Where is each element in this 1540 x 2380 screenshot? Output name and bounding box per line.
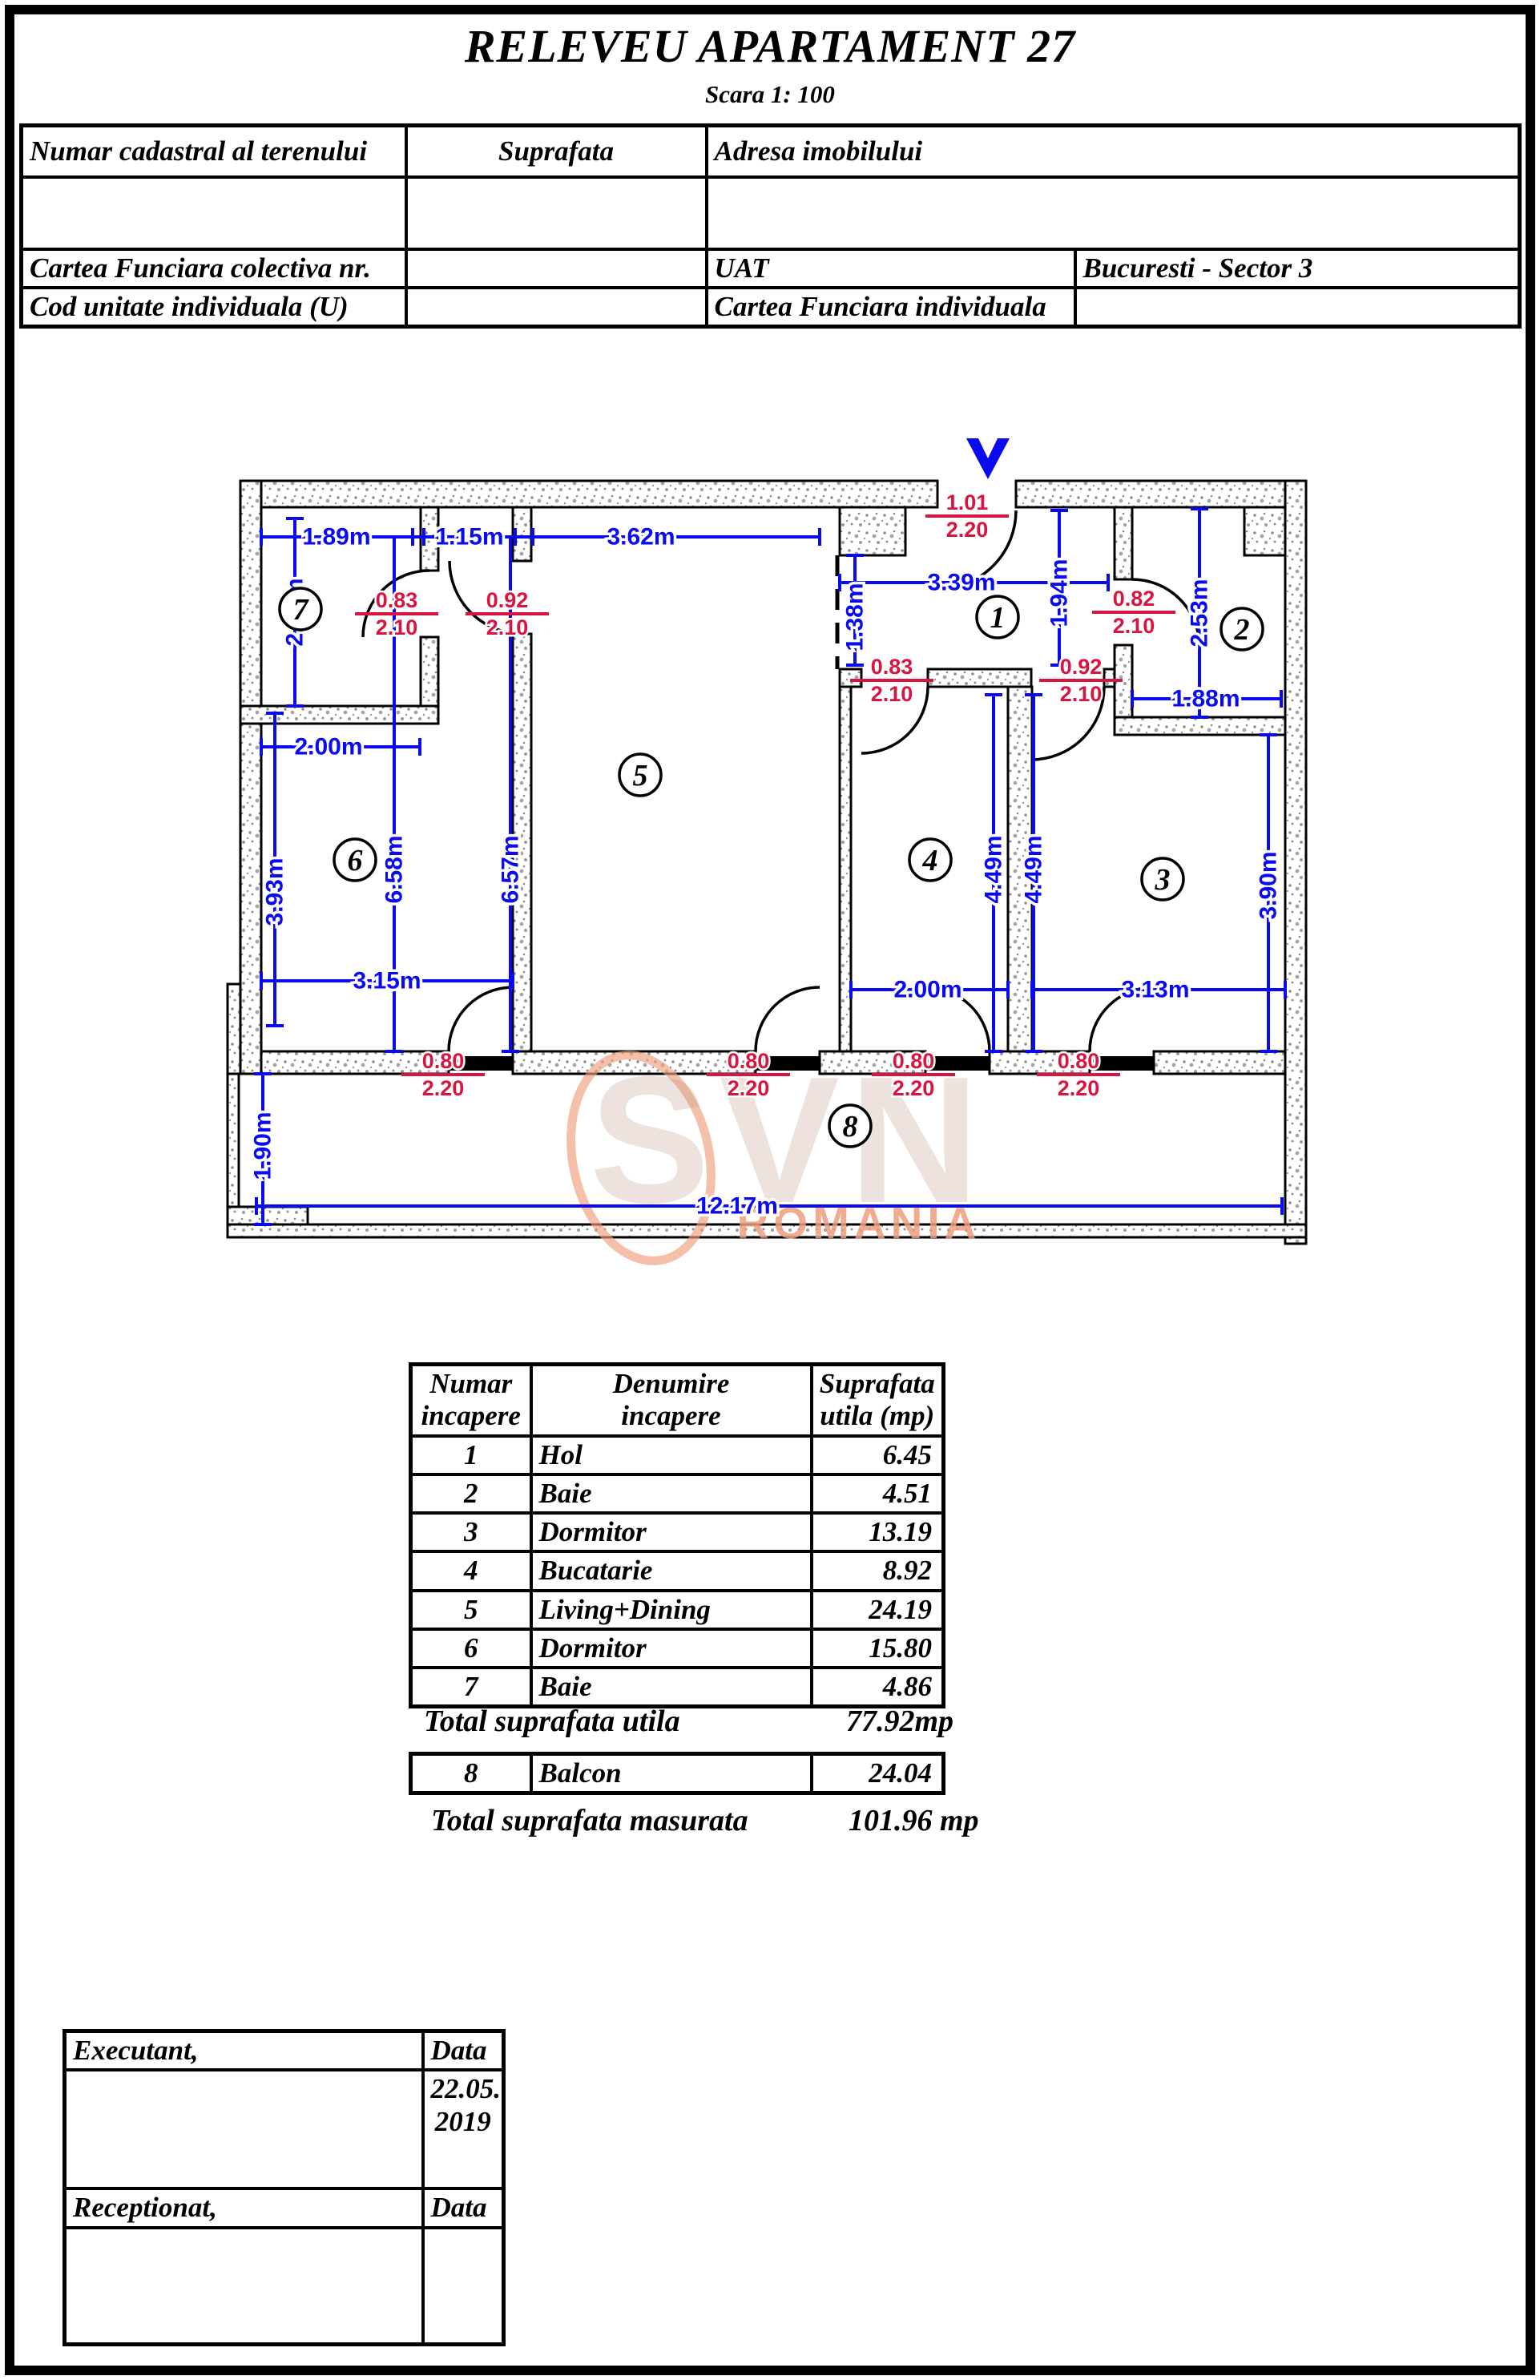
- col-header-suprafata: Suprafata utila (mp): [812, 1365, 944, 1436]
- dim-label: 6.58m: [381, 835, 408, 903]
- room-badge-1: 1: [977, 596, 1018, 638]
- dim-label: 6.57m: [498, 835, 524, 903]
- table-row: 3 Dormitor 13.19: [411, 1513, 944, 1551]
- cell-cf-colectiva: Cartea Funciara colectiva nr.: [22, 249, 406, 288]
- svg-text:8: 8: [843, 1110, 858, 1144]
- total-masurata-value: 101.96 mp: [849, 1803, 979, 1838]
- table-row: 1 Hol 6.45: [411, 1436, 944, 1474]
- cell-cf-individuala: Cartea Funciara individuala: [707, 288, 1075, 327]
- room-badge-2: 2: [1221, 608, 1263, 650]
- cell-empty: [406, 288, 707, 327]
- dim-label: 3.39m: [927, 570, 995, 596]
- door-size-label: 0.82 2.10: [1092, 587, 1175, 638]
- dim-label: 1.89m: [302, 524, 370, 551]
- room-badge-3: 3: [1142, 858, 1183, 900]
- svg-text:7: 7: [293, 593, 310, 627]
- svg-text:1.01: 1.01: [946, 490, 989, 514]
- table-row: 6 Dormitor 15.80: [411, 1629, 944, 1668]
- dim-label: 1.94m: [1046, 559, 1073, 627]
- svg-text:2.10: 2.10: [1113, 614, 1155, 638]
- svg-text:2.20: 2.20: [946, 518, 989, 542]
- table-row: 8 Balcon 24.04: [411, 1754, 944, 1793]
- room-areas-table: Numar incapere Denumire incapere Suprafa…: [409, 1362, 945, 1708]
- dim-label: 1.15m: [435, 524, 503, 551]
- room-badge-7: 7: [280, 588, 321, 630]
- svg-text:0.82: 0.82: [1113, 587, 1155, 611]
- cell-uat: UAT: [707, 249, 1075, 288]
- cell-empty: [423, 2228, 504, 2345]
- svg-text:2.10: 2.10: [376, 615, 418, 639]
- svg-text:4: 4: [922, 844, 938, 877]
- svg-text:0.83: 0.83: [376, 588, 418, 612]
- svg-text:0.92: 0.92: [486, 588, 529, 612]
- svg-text:0.80: 0.80: [422, 1049, 465, 1073]
- cell-empty: [406, 177, 707, 249]
- dim-label: 3.93m: [262, 857, 288, 926]
- cell-cod-unitate: Cod unitate individuala (U): [22, 288, 406, 327]
- floor-plan: SVN ROMANIA 1.89m 1.15m: [208, 433, 1330, 1266]
- dim-label: 1.88m: [1171, 686, 1240, 712]
- dim-label: 3.15m: [353, 968, 421, 994]
- document-page: RELEVEU APARTAMENT 27 Scara 1: 100 Numar…: [0, 0, 1540, 2380]
- scale-label: Scara 1: 100: [0, 80, 1540, 109]
- cell-empty: [22, 177, 406, 249]
- svg-text:5: 5: [633, 759, 648, 793]
- room-badge-4: 4: [909, 839, 951, 881]
- cell-date: 22.05. 2019: [423, 2070, 504, 2188]
- col-header-denumire: Denumire incapere: [531, 1365, 812, 1436]
- dim-label: 3.90m: [1256, 851, 1282, 919]
- svg-text:0.80: 0.80: [1058, 1049, 1100, 1073]
- dim-label: 2.00m: [294, 734, 362, 760]
- svg-text:3: 3: [1155, 863, 1171, 897]
- svg-text:0.83: 0.83: [871, 655, 913, 679]
- svg-text:2.10: 2.10: [486, 615, 529, 639]
- svg-text:6: 6: [348, 844, 363, 877]
- door-size-label: 0.83 2.10: [850, 655, 933, 706]
- balcony-row-table: 8 Balcon 24.04: [409, 1752, 945, 1795]
- total-utila-value: 77.92mp: [846, 1704, 953, 1739]
- svg-text:0.80: 0.80: [728, 1049, 770, 1073]
- dim-label: 3.13m: [1121, 977, 1189, 1003]
- signature-table: Executant, Data 22.05. 2019 Receptionat,…: [62, 2029, 506, 2346]
- svg-text:2.20: 2.20: [728, 1076, 770, 1100]
- svg-text:1: 1: [990, 601, 1006, 635]
- dim-label: 12.17m: [696, 1193, 778, 1220]
- total-utila-label: Total suprafata utila: [424, 1704, 680, 1739]
- cell-receptionat: Receptionat,: [65, 2188, 423, 2227]
- svg-text:2.20: 2.20: [1058, 1076, 1100, 1100]
- page-title: RELEVEU APARTAMENT 27: [0, 19, 1540, 73]
- total-masurata-label: Total suprafata masurata: [431, 1803, 748, 1838]
- table-row: 5 Living+Dining 24.19: [411, 1591, 944, 1629]
- door-size-label: 0.92 2.10: [466, 588, 549, 639]
- cell-empty: [707, 177, 1520, 249]
- room-badge-8: 8: [829, 1105, 871, 1147]
- table-row: 7 Baie 4.86: [411, 1668, 944, 1707]
- cell-data-1: Data: [423, 2031, 504, 2071]
- cadastral-header-table: Numar cadastral al terenului Suprafata A…: [19, 123, 1522, 329]
- dim-label: 4.49m: [981, 835, 1007, 903]
- cell-executant: Executant,: [65, 2031, 423, 2071]
- table-row: 4 Bucatarie 8.92: [411, 1551, 944, 1590]
- room-badge-5: 5: [619, 754, 661, 796]
- table-row: 2 Baie 4.51: [411, 1474, 944, 1513]
- dim-label: 2.53m: [1187, 579, 1213, 647]
- col-header-numar: Numar incapere: [411, 1365, 531, 1436]
- svg-text:2.10: 2.10: [871, 682, 913, 706]
- cell-sector: Bucuresti - Sector 3: [1075, 249, 1520, 288]
- cell-data-2: Data: [423, 2188, 504, 2227]
- cell-adresa: Adresa imobilului: [707, 126, 1520, 177]
- cell-empty: [65, 2070, 423, 2188]
- svg-text:2.10: 2.10: [1060, 682, 1103, 706]
- room-badge-6: 6: [334, 839, 376, 881]
- svg-text:2.20: 2.20: [422, 1076, 465, 1100]
- dim-label: 4.49m: [1021, 835, 1047, 903]
- entrance-arrow-icon: [966, 438, 1010, 479]
- svg-text:2: 2: [1234, 613, 1250, 647]
- svg-text:2.20: 2.20: [893, 1076, 935, 1100]
- cell-empty: [406, 249, 707, 288]
- cell-suprafata: Suprafata: [406, 126, 707, 177]
- svg-text:0.80: 0.80: [893, 1049, 935, 1073]
- door-size-label: 0.83 2.10: [355, 588, 438, 639]
- cell-empty: [65, 2228, 423, 2345]
- dim-label: 1.38m: [842, 583, 869, 651]
- dim-label: 2.00m: [893, 977, 961, 1003]
- door-size-label: 0.92 2.10: [1039, 655, 1123, 706]
- dim-label: 1.90m: [250, 1111, 276, 1180]
- cell-numar-cadastral: Numar cadastral al terenului: [22, 126, 406, 177]
- dim-label: 3.62m: [607, 524, 675, 551]
- svg-text:0.92: 0.92: [1060, 655, 1103, 679]
- cell-empty: [1075, 288, 1520, 327]
